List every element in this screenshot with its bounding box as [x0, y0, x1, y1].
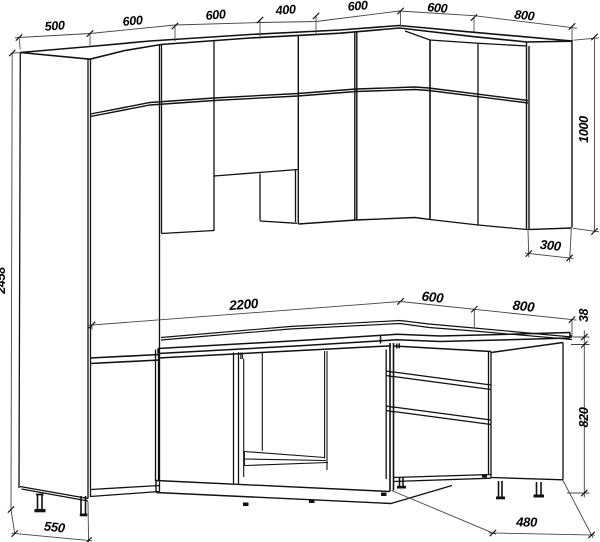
svg-text:600: 600 [421, 289, 445, 306]
svg-text:550: 550 [43, 518, 66, 535]
svg-text:38: 38 [577, 309, 591, 323]
svg-text:800: 800 [512, 298, 536, 315]
svg-text:1000: 1000 [577, 116, 591, 143]
svg-text:600: 600 [427, 0, 448, 16]
svg-text:2458: 2458 [0, 267, 8, 295]
svg-text:2200: 2200 [228, 296, 260, 313]
svg-text:600: 600 [122, 13, 143, 29]
svg-text:300: 300 [539, 237, 562, 254]
svg-text:820: 820 [577, 407, 591, 427]
svg-text:600: 600 [347, 0, 368, 14]
svg-text:480: 480 [515, 514, 538, 529]
svg-text:600: 600 [205, 7, 226, 23]
svg-text:400: 400 [274, 2, 296, 17]
svg-text:800: 800 [514, 8, 536, 24]
svg-text:500: 500 [44, 18, 65, 33]
